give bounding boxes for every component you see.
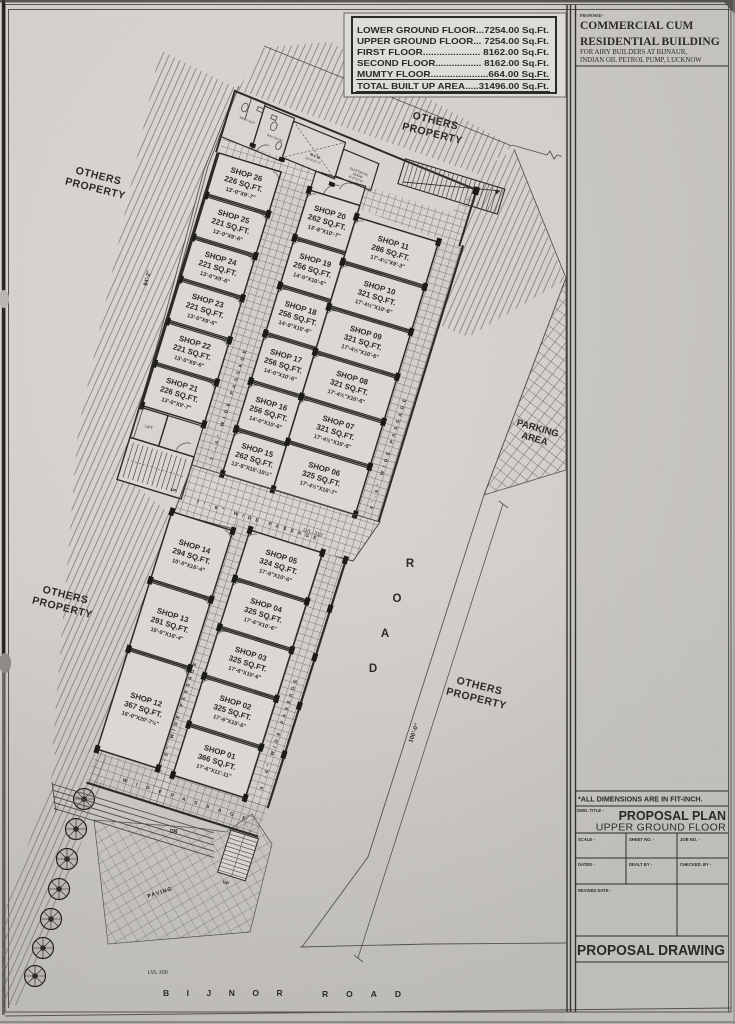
svg-text:SHEET NO. -: SHEET NO. - <box>629 837 655 842</box>
svg-text:CHECKED. BY -: CHECKED. BY - <box>680 862 712 867</box>
svg-text:INDIAN OIL PETROL PUMP, LUCKNO: INDIAN OIL PETROL PUMP, LUCKNOW <box>580 57 702 64</box>
svg-text:BIJNOR: BIJNOR <box>163 988 300 998</box>
svg-text:LOWER GROUND FLOOR...7254.00 S: LOWER GROUND FLOOR...7254.00 Sq.Ft. <box>357 26 549 35</box>
svg-text:DEALT BY -: DEALT BY - <box>629 862 653 867</box>
svg-text:FIRST FLOOR...................: FIRST FLOOR..................... 8162.00… <box>357 48 549 57</box>
svg-text:R: R <box>406 558 415 570</box>
svg-text:DATED -: DATED - <box>578 862 595 867</box>
svg-text:COMMERCIAL CUM: COMMERCIAL CUM <box>580 20 694 32</box>
svg-text:LVL ±00: LVL ±00 <box>148 970 168 976</box>
svg-text:ROAD: ROAD <box>322 989 419 999</box>
svg-text:PROPOSAL DRAWING: PROPOSAL DRAWING <box>577 943 725 959</box>
svg-text:REVISED DATE -: REVISED DATE - <box>578 888 612 893</box>
svg-text:SCALE -: SCALE - <box>578 837 595 842</box>
svg-text:JOB NO. -: JOB NO. - <box>680 837 700 842</box>
svg-text:MUMTY FLOOR...................: MUMTY FLOOR.....................664.00 S… <box>357 70 549 79</box>
svg-text:DN: DN <box>170 829 178 835</box>
svg-text:O: O <box>393 593 402 605</box>
svg-text:RESIDENTIAL BUILDING: RESIDENTIAL BUILDING <box>580 36 720 48</box>
svg-text:DWG. TITLE -: DWG. TITLE - <box>577 808 604 813</box>
svg-text:UPPER GROUND FLOOR... 7254.00: UPPER GROUND FLOOR... 7254.00 Sq.Ft. <box>357 37 549 46</box>
svg-text:A: A <box>381 628 389 640</box>
svg-text:SECOND FLOOR.................: SECOND FLOOR................. 8162.00 Sq… <box>357 59 549 68</box>
svg-text:TOTAL BUILT UP AREA.....31496.: TOTAL BUILT UP AREA.....31496.00 Sq.Ft. <box>357 82 549 91</box>
svg-text:*ALL DIMENSIONS ARE IN FIT-INC: *ALL DIMENSIONS ARE IN FIT-INCH. <box>578 795 703 804</box>
svg-text:PROPOSED -: PROPOSED - <box>580 13 605 18</box>
svg-text:FOR AIRY BUILDERS AT BIJNAUR,: FOR AIRY BUILDERS AT BIJNAUR, <box>580 49 687 56</box>
svg-text:D: D <box>369 663 377 675</box>
svg-text:UPPER GROUND FLOOR: UPPER GROUND FLOOR <box>596 822 726 834</box>
